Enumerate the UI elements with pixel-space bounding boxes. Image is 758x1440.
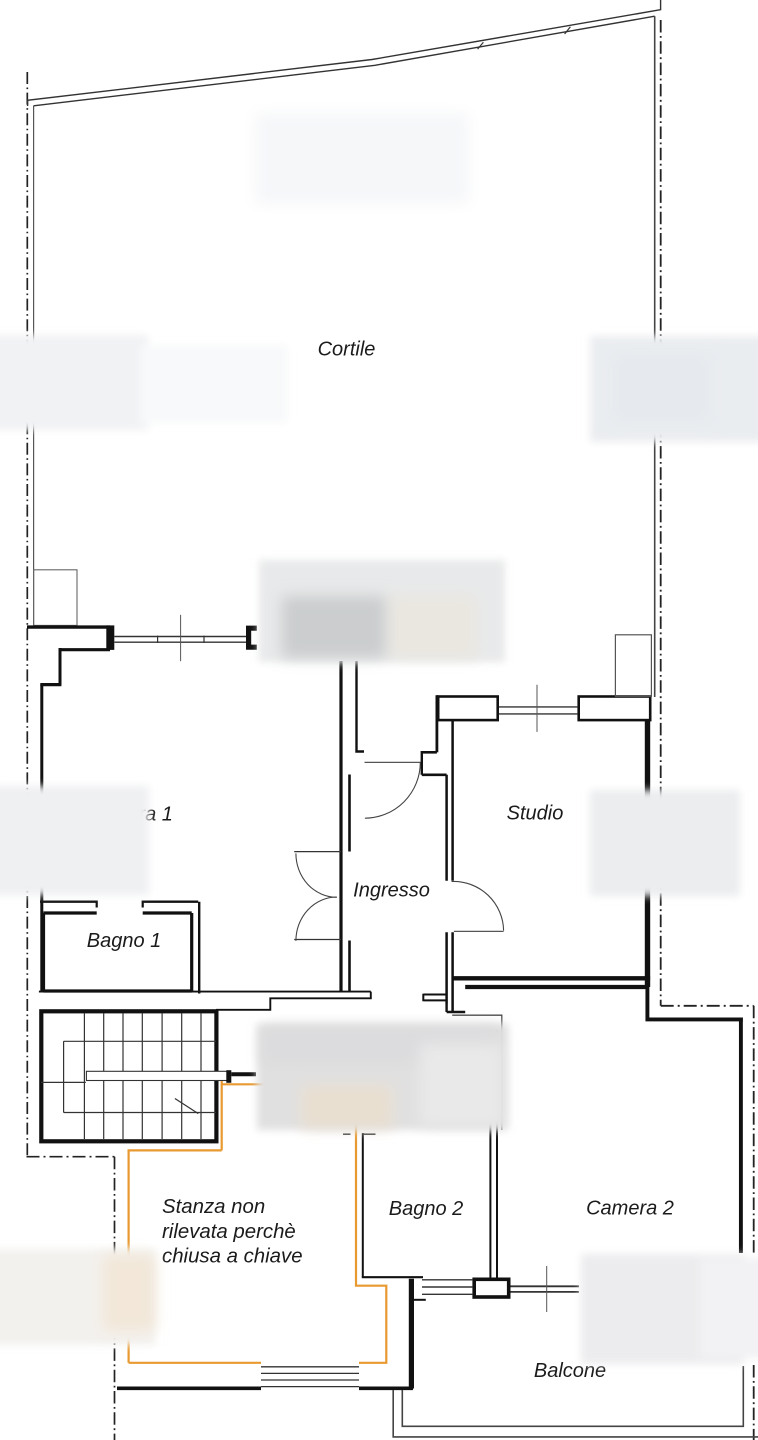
- svg-text:chiusa a chiave: chiusa a chiave: [162, 1246, 303, 1268]
- svg-text:Bagno 2: Bagno 2: [389, 1198, 464, 1220]
- svg-text:Stanza non: Stanza non: [162, 1196, 265, 1218]
- svg-text:Studio: Studio: [507, 803, 564, 825]
- svg-text:rilevata perchè: rilevata perchè: [162, 1221, 296, 1243]
- svg-text:Bagno 1: Bagno 1: [87, 930, 162, 952]
- svg-text:Ingresso: Ingresso: [353, 880, 430, 902]
- svg-text:Camera 2: Camera 2: [586, 1198, 674, 1220]
- svg-text:Cortile: Cortile: [318, 339, 376, 361]
